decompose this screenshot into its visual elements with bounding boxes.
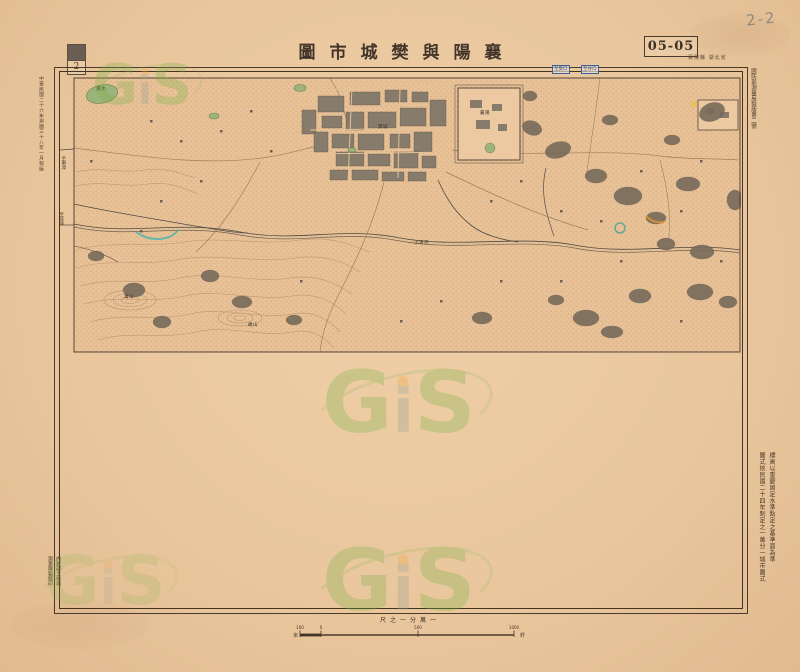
printing-imprint: 內政部土地司 測量隊製版印: [46, 556, 62, 602]
publisher-note: 國防部測量局製版第二號: [750, 68, 756, 148]
edge-label-vertical: 至南漳: [60, 156, 65, 170]
map-label: 樊城: [378, 124, 388, 130]
survey-date-note: 中華民國二十六年測圖三十八年一月製版: [38, 76, 43, 186]
map-label: 漢水: [96, 86, 106, 92]
map-label: 襄陽: [480, 110, 490, 116]
map-canvas: [60, 72, 741, 606]
legend-notes: 標高以重慶固定水準點定之基準面為準 圖式依民國二十四年制定之一萬分一城市圖式: [756, 452, 776, 592]
map-label: 小清河: [414, 240, 429, 246]
imprint-line: 內政部土地司: [54, 556, 62, 602]
imprint-line: 測量隊製版印: [46, 556, 54, 602]
scale-bar-group: 尺之一分萬一 100 0 500 1000 米 粁: [288, 615, 532, 641]
sheet-county-note: 襄陽縣 湖北省: [688, 54, 727, 61]
map-label: 峴山: [248, 322, 258, 328]
walled-city: [455, 85, 523, 163]
stamp-ink-block: [68, 45, 85, 61]
edge-label-vertical: 至谷城: [58, 212, 63, 226]
edge-label-box: 至樊口: [552, 65, 570, 74]
handwritten-sheet-mark: 2-2: [745, 8, 777, 29]
scale-tick-label: 500: [414, 625, 422, 630]
elevation-datum-note: 標高以重慶固定水準點定之基準面為準: [766, 452, 776, 592]
scale-bar: 100 0 500 1000 米 粁: [288, 625, 532, 641]
edge-label-box: 至谷口: [581, 65, 599, 74]
scale-unit-right: 粁: [520, 632, 525, 639]
scale-tick-label: 1000: [509, 625, 520, 630]
scale-tick-label: 0: [320, 625, 323, 630]
map-sheet: 2-2 圖市城樊與陽襄 05-05 襄陽縣 湖北省 2: [0, 0, 800, 672]
scale-ratio-label: 尺之一分萬一: [288, 615, 532, 624]
map-label: 萬山: [124, 294, 134, 300]
symbology-note: 圖式依民國二十四年制定之一萬分一城市圖式: [756, 452, 766, 592]
scale-unit-left: 米: [293, 632, 298, 639]
scale-tick-label: 100: [296, 625, 304, 630]
